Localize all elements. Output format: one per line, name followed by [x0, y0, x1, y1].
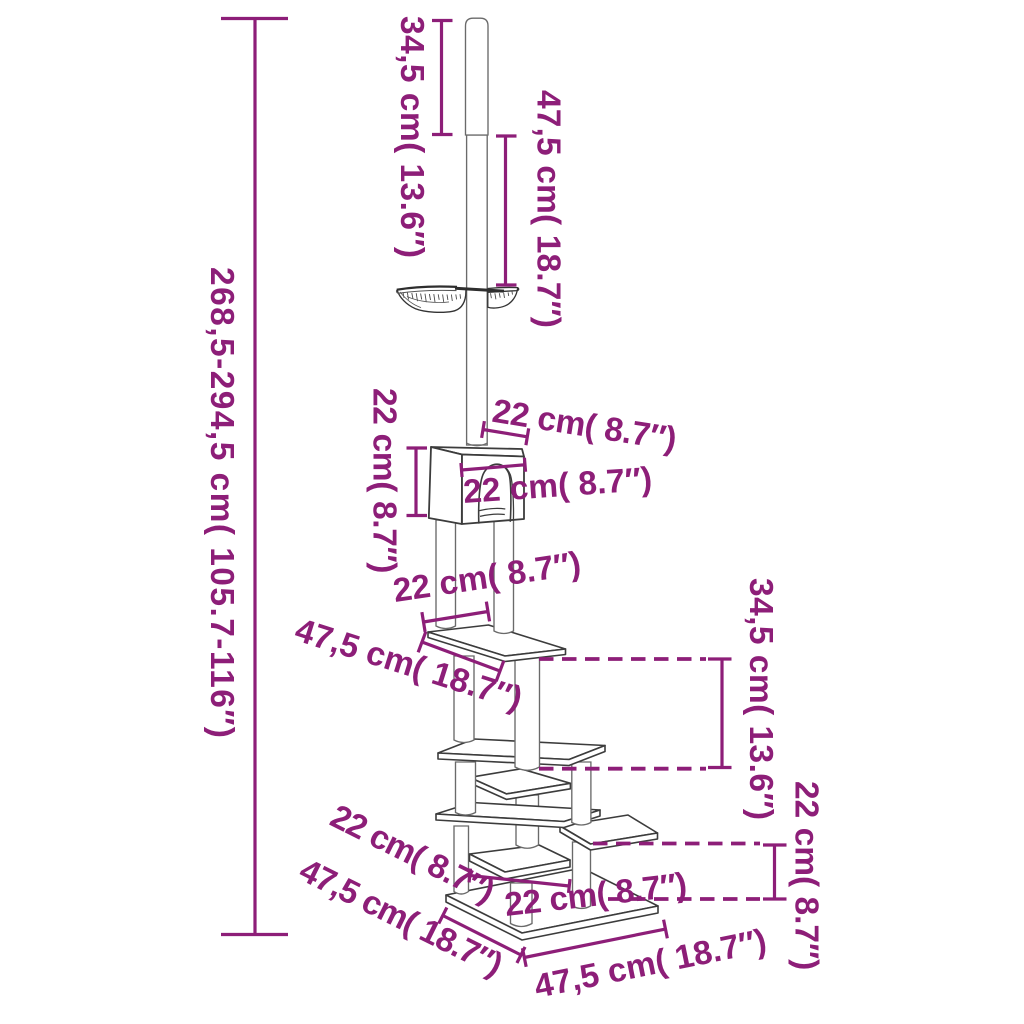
- svg-text:22 cm( 8.7″): 22 cm( 8.7″): [366, 388, 403, 573]
- svg-text:22 cm( 8.7″): 22 cm( 8.7″): [788, 781, 825, 970]
- svg-text:34,5 cm( 13.6″): 34,5 cm( 13.6″): [742, 578, 779, 821]
- svg-text:268,5-294,5 cm( 105.7-116″): 268,5-294,5 cm( 105.7-116″): [203, 267, 240, 739]
- svg-text:34,5 cm( 13.6″): 34,5 cm( 13.6″): [393, 16, 430, 259]
- svg-text:47,5 cm( 18.7″): 47,5 cm( 18.7″): [530, 90, 567, 328]
